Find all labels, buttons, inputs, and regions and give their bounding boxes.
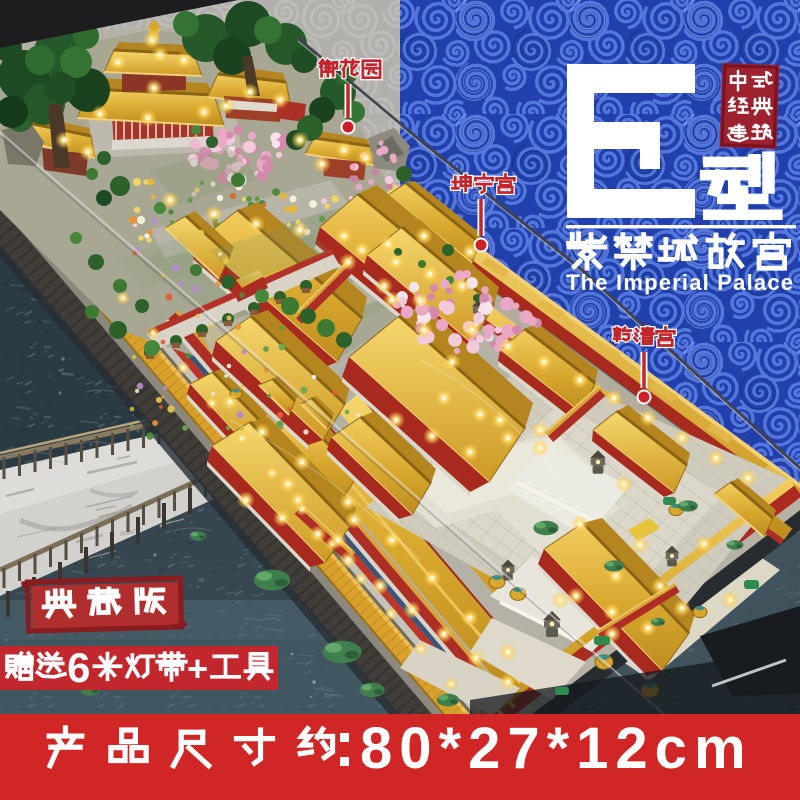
svg-text:80*27*12cm: 80*27*12cm [360, 716, 753, 781]
svg-text:6: 6 [67, 644, 90, 691]
svg-text:+: + [187, 648, 208, 689]
svg-text:The Imperial Palace: The Imperial Palace [566, 270, 794, 295]
